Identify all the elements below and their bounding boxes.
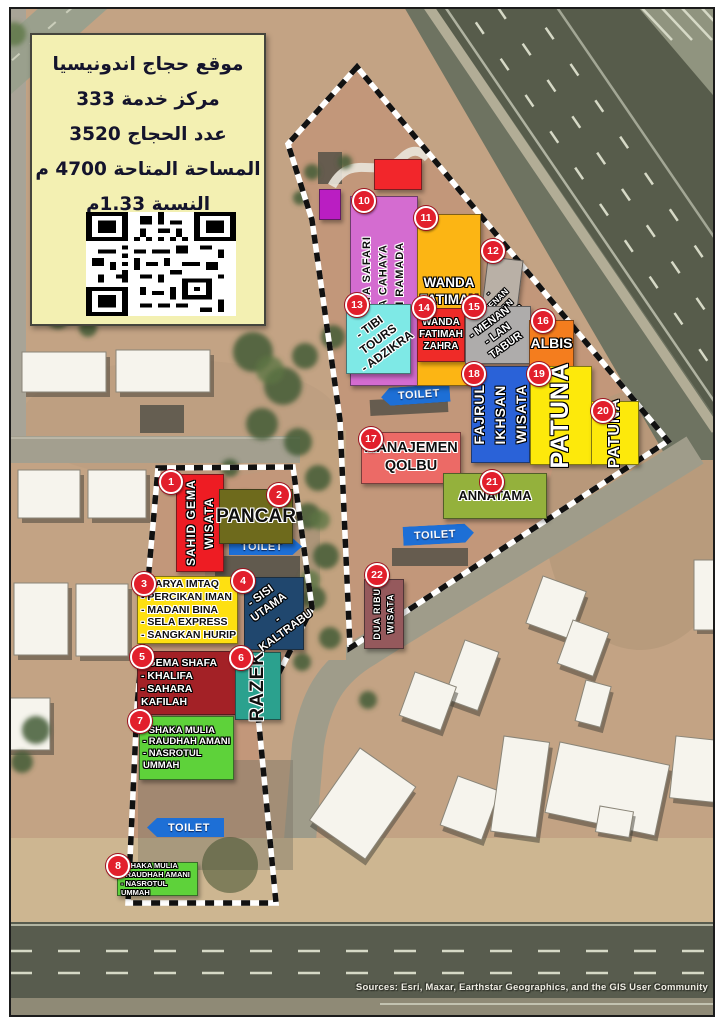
toilet-label: TOILET xyxy=(398,387,441,402)
block-label: DUA RIBU WISATA xyxy=(371,588,398,640)
marker-22: 22 xyxy=(365,563,389,587)
block-shaka-mulia-group: - SHAKA MULIA - RAUDHAH AMANI - NASROTUL… xyxy=(139,716,234,780)
marker-19: 19 xyxy=(527,362,551,386)
marker-7: 7 xyxy=(128,709,152,733)
marker-18: 18 xyxy=(462,362,486,386)
marker-6: 6 xyxy=(229,646,253,670)
marker-5: 5 xyxy=(130,645,154,669)
map-attribution: Sources: Esri, Maxar, Earthstar Geograph… xyxy=(356,982,708,993)
service-center-line: مركز خدمة 333 xyxy=(32,82,264,117)
marker-2: 2 xyxy=(267,483,291,507)
satellite-map: .tt{fill:#f6f4ed;stroke:#8a8578;stroke-w… xyxy=(0,0,724,1024)
map-page: .tt{fill:#f6f4ed;stroke:#8a8578;stroke-w… xyxy=(0,0,724,1024)
block-label: - SHAKA MULIA - RAUDHAH AMANI - NASROTUL… xyxy=(121,861,197,898)
site-title: موقع حجاج اندونيسيا xyxy=(32,47,264,82)
area-line: المساحة المتاحة 4700 م xyxy=(32,152,264,187)
marker-12: 12 xyxy=(481,239,505,263)
block-label: WANDA FATIMAH ZAHRA xyxy=(419,317,463,354)
marker-8: 8 xyxy=(106,854,130,878)
block-label: - SHAKA MULIA - RAUDHAH AMANI - NASROTUL… xyxy=(143,725,233,771)
marker-16: 16 xyxy=(531,309,555,333)
block-label: - GEMA SHAFA - KHALIFA - SAHARA KAFILAH xyxy=(141,657,238,708)
marker-13: 13 xyxy=(345,293,369,317)
toilet-label: TOILET xyxy=(414,528,456,542)
block-magenta-unlabeled xyxy=(319,189,341,220)
marker-17: 17 xyxy=(359,427,383,451)
block-label: FAJRUL IKHSAN WISATA xyxy=(469,384,532,444)
toilet-sign: TOILET xyxy=(147,818,224,837)
marker-10: 10 xyxy=(352,189,376,213)
qr-code xyxy=(86,212,236,316)
pilgrim-count-line: عدد الحجاج 3520 xyxy=(32,117,264,152)
block-label: ALBIS xyxy=(531,335,573,352)
block-sisi-utama-kaltrabu: - SISI UTAMA - KALTRABU xyxy=(244,577,304,650)
marker-15: 15 xyxy=(462,295,486,319)
marker-4: 4 xyxy=(231,569,255,593)
block-dua-ribu-wisata: DUA RIBU WISATA xyxy=(364,579,404,649)
info-panel: موقع حجاج اندونيسيا مركز خدمة 333 عدد ال… xyxy=(30,33,266,326)
block-label: PANCAR xyxy=(216,505,296,528)
marker-3: 3 xyxy=(132,572,156,596)
marker-1: 1 xyxy=(159,470,183,494)
marker-14: 14 xyxy=(412,296,436,320)
marker-20: 20 xyxy=(591,399,615,423)
marker-21: 21 xyxy=(480,470,504,494)
toilet-label: TOILET xyxy=(168,822,210,834)
block-label: SAHID GEMA WISATA xyxy=(182,475,218,571)
toilet-sign: TOILET xyxy=(403,523,475,546)
marker-11: 11 xyxy=(414,206,438,230)
block-red-unlabeled xyxy=(374,159,422,190)
